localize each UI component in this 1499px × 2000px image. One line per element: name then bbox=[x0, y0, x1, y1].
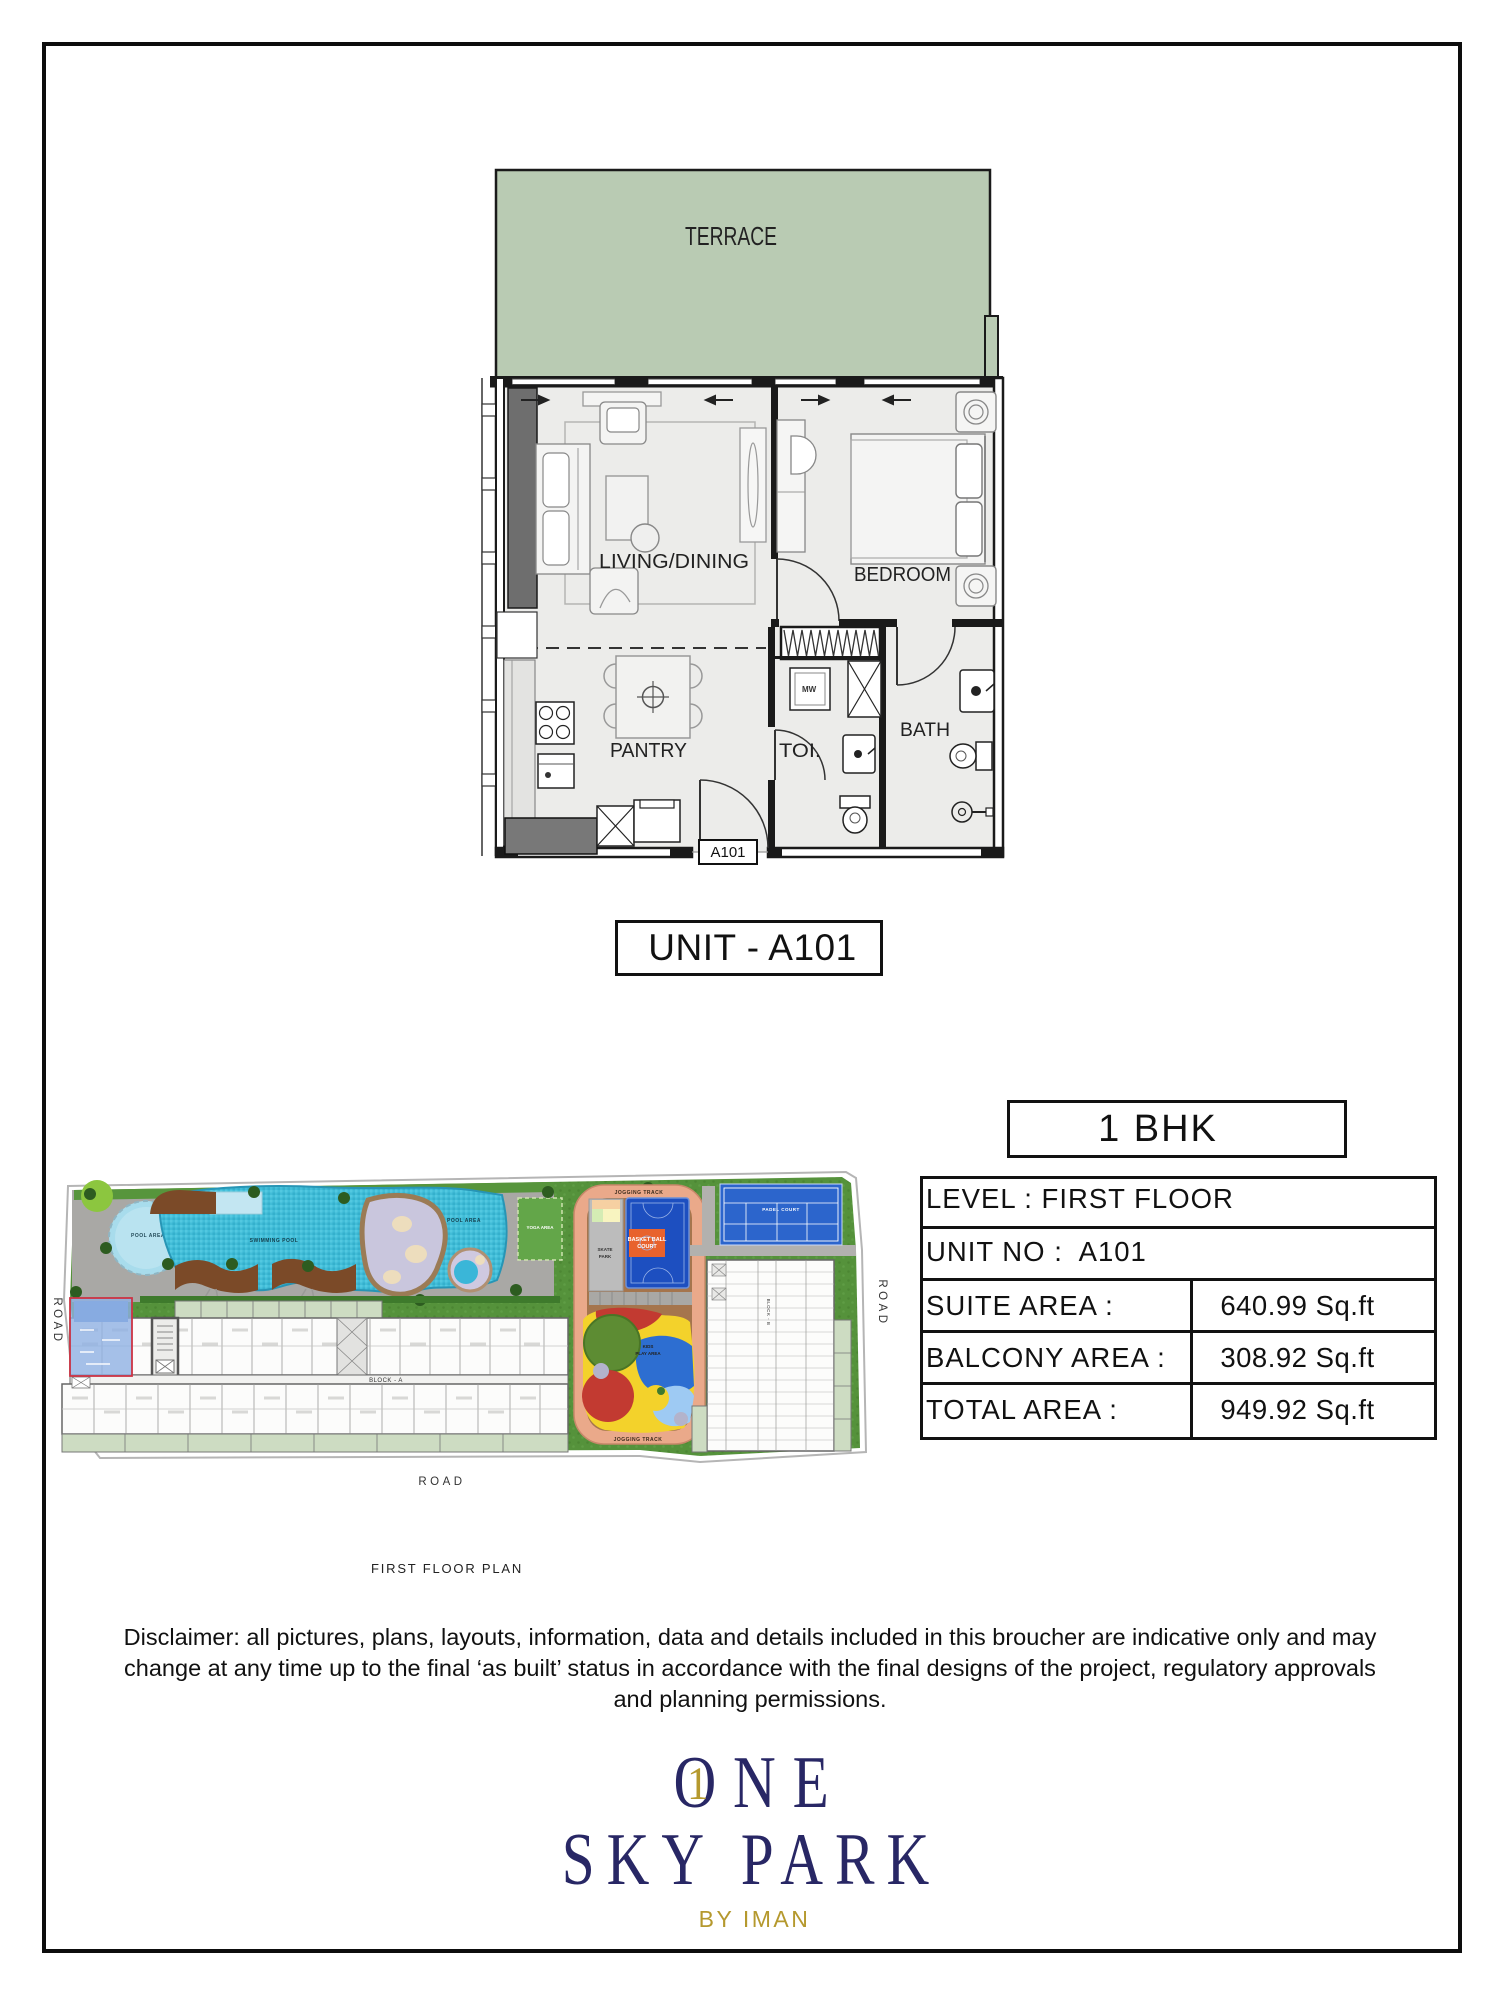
svg-text:BATH: BATH bbox=[900, 720, 950, 741]
svg-text:BLOCK - A: BLOCK - A bbox=[369, 1378, 403, 1384]
svg-text:SWIMMING POOL: SWIMMING POOL bbox=[250, 1238, 299, 1244]
svg-text:BEDROOM: BEDROOM bbox=[854, 564, 951, 586]
svg-text:PADEL COURT: PADEL COURT bbox=[762, 1207, 800, 1212]
svg-text:PARK: PARK bbox=[599, 1254, 612, 1259]
svg-text:ROAD: ROAD bbox=[876, 1279, 888, 1326]
svg-text:KIDS: KIDS bbox=[643, 1344, 654, 1349]
svg-text:ROAD: ROAD bbox=[418, 1476, 465, 1488]
svg-text:SKATE: SKATE bbox=[598, 1247, 613, 1252]
svg-text:JOGGING TRACK: JOGGING TRACK bbox=[614, 1437, 663, 1443]
svg-text:POOL AREA: POOL AREA bbox=[447, 1218, 481, 1224]
svg-text:POOL AREA: POOL AREA bbox=[131, 1233, 165, 1239]
svg-text:BLOCK - B: BLOCK - B bbox=[766, 1299, 771, 1326]
svg-text:A101: A101 bbox=[710, 844, 745, 861]
svg-text:JOGGING TRACK: JOGGING TRACK bbox=[615, 1190, 664, 1196]
svg-text:PLAY AREA: PLAY AREA bbox=[635, 1351, 661, 1356]
svg-text:TOI.: TOI. bbox=[779, 741, 821, 762]
svg-text:TERRACE: TERRACE bbox=[685, 221, 777, 251]
svg-text:ROAD: ROAD bbox=[51, 1297, 63, 1344]
svg-text:LIVING/DINING: LIVING/DINING bbox=[599, 551, 749, 573]
svg-text:PANTRY: PANTRY bbox=[610, 740, 687, 762]
svg-text:YOGA AREA: YOGA AREA bbox=[527, 1225, 555, 1230]
svg-text:COURT: COURT bbox=[637, 1244, 657, 1250]
svg-text:BASKET BALL: BASKET BALL bbox=[628, 1237, 667, 1243]
svg-text:MW: MW bbox=[802, 685, 817, 694]
